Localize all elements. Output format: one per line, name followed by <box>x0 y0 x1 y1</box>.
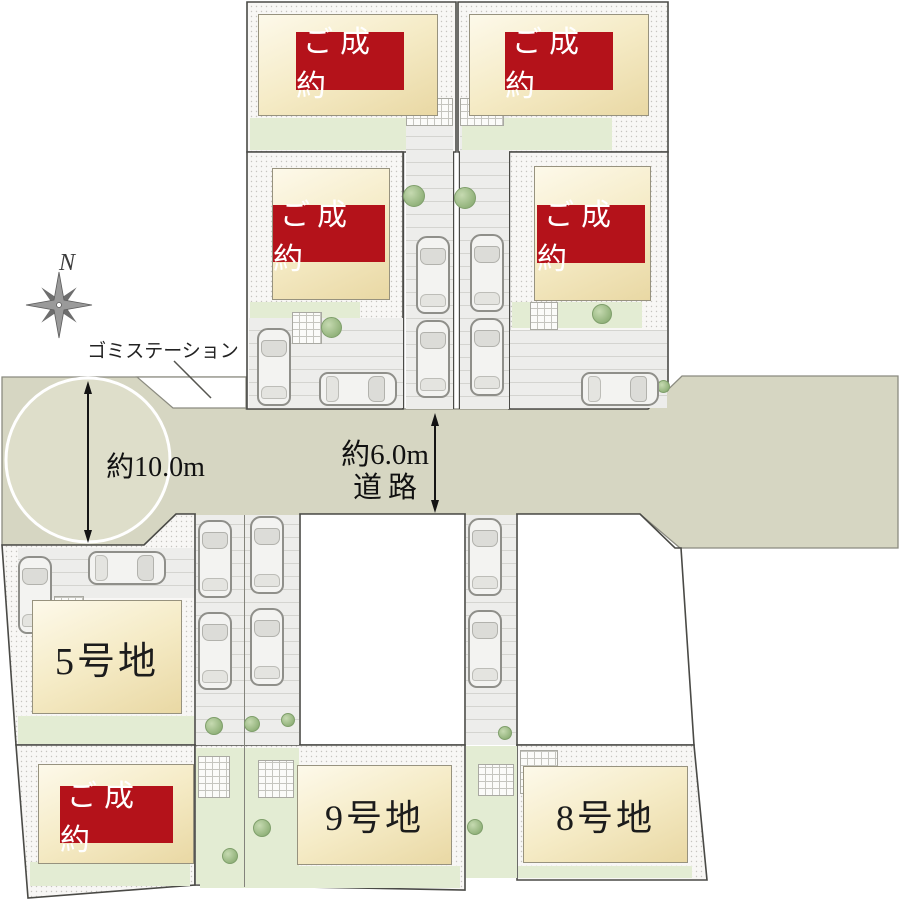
car-icon <box>470 318 504 396</box>
garden-strip <box>30 862 190 886</box>
lot8-label: 8号地 <box>523 766 688 863</box>
garbage-station-label: ゴミステーション <box>80 336 246 363</box>
car-icon <box>250 516 284 594</box>
road-label: 道路 <box>325 464 445 506</box>
garden-strip <box>18 716 194 744</box>
car-icon <box>257 328 291 406</box>
site-plan: ご成約 ご成約 ご成約 ご成約 ご成約 5号地 9号地 8号地 約10.0m 約… <box>0 0 900 900</box>
car-icon <box>198 520 232 598</box>
tree-icon <box>281 713 295 727</box>
sold-banner: ご成約 <box>273 205 385 262</box>
car-icon <box>470 234 504 312</box>
tree-icon <box>222 848 238 864</box>
car-icon <box>416 320 450 398</box>
car-icon <box>416 236 450 314</box>
entry-steps <box>292 312 322 344</box>
sold-banner: ご成約 <box>505 32 613 90</box>
tree-icon <box>253 819 271 837</box>
lot9-label: 9号地 <box>297 765 452 865</box>
lot-middle-empty <box>300 514 465 745</box>
tree-icon <box>244 716 260 732</box>
car-icon <box>319 372 397 406</box>
entry-steps <box>530 302 558 330</box>
tree-icon <box>467 819 483 835</box>
car-icon <box>250 608 284 686</box>
entry-steps <box>258 760 294 798</box>
sold-banner: ご成約 <box>60 786 173 843</box>
car-icon <box>88 551 166 585</box>
tree-icon <box>498 726 512 740</box>
garden-strip <box>518 866 692 878</box>
tree-icon <box>454 187 476 209</box>
tree-icon <box>592 304 612 324</box>
garden-strip <box>200 866 460 888</box>
dimension-10m-label: 約10.0m <box>98 445 213 485</box>
north-label: N <box>52 250 82 277</box>
car-icon <box>198 612 232 690</box>
driveway-centerline <box>244 515 245 887</box>
tree-icon <box>321 317 342 338</box>
garden-strip <box>250 118 406 150</box>
lot5-label: 5号地 <box>32 600 182 714</box>
car-icon <box>581 372 659 406</box>
sold-banner: ご成約 <box>296 32 404 90</box>
compass-rose <box>24 270 95 341</box>
sold-banner: ご成約 <box>537 205 645 263</box>
entry-steps <box>198 756 230 798</box>
tree-icon <box>403 185 425 207</box>
car-icon <box>468 610 502 688</box>
car-icon <box>468 518 502 596</box>
entry-steps <box>478 764 514 796</box>
tree-icon <box>205 717 223 735</box>
lot-right-empty <box>517 514 694 745</box>
